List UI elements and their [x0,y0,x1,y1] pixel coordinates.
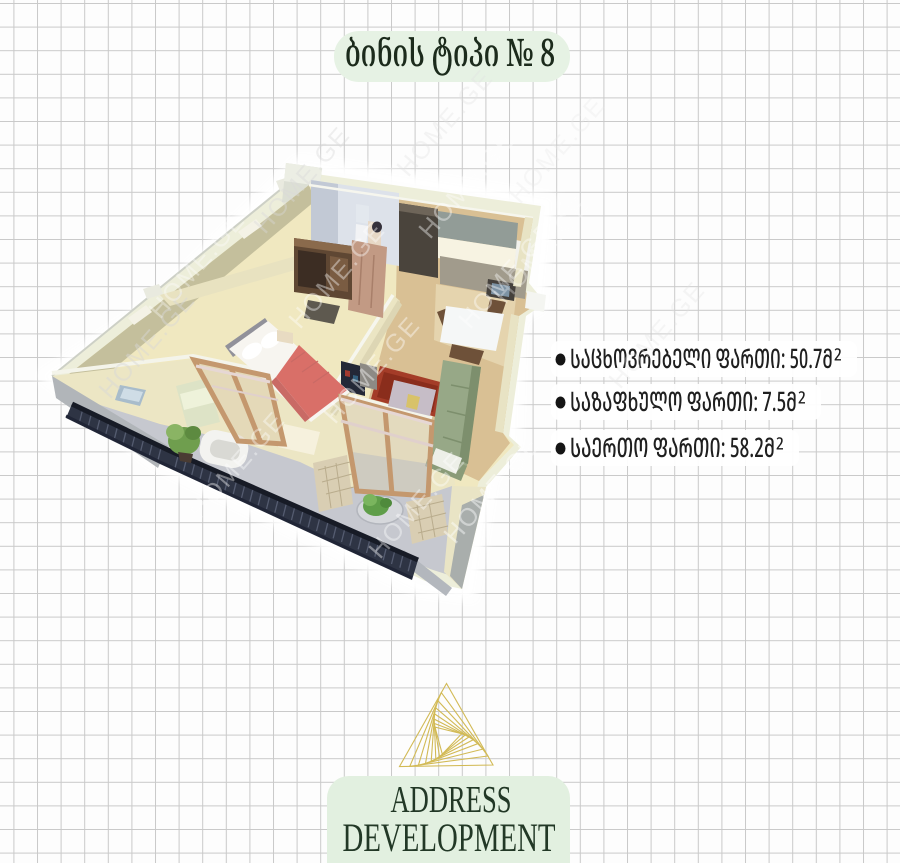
svg-text:DEVELOPMENT: DEVELOPMENT [343,815,556,860]
